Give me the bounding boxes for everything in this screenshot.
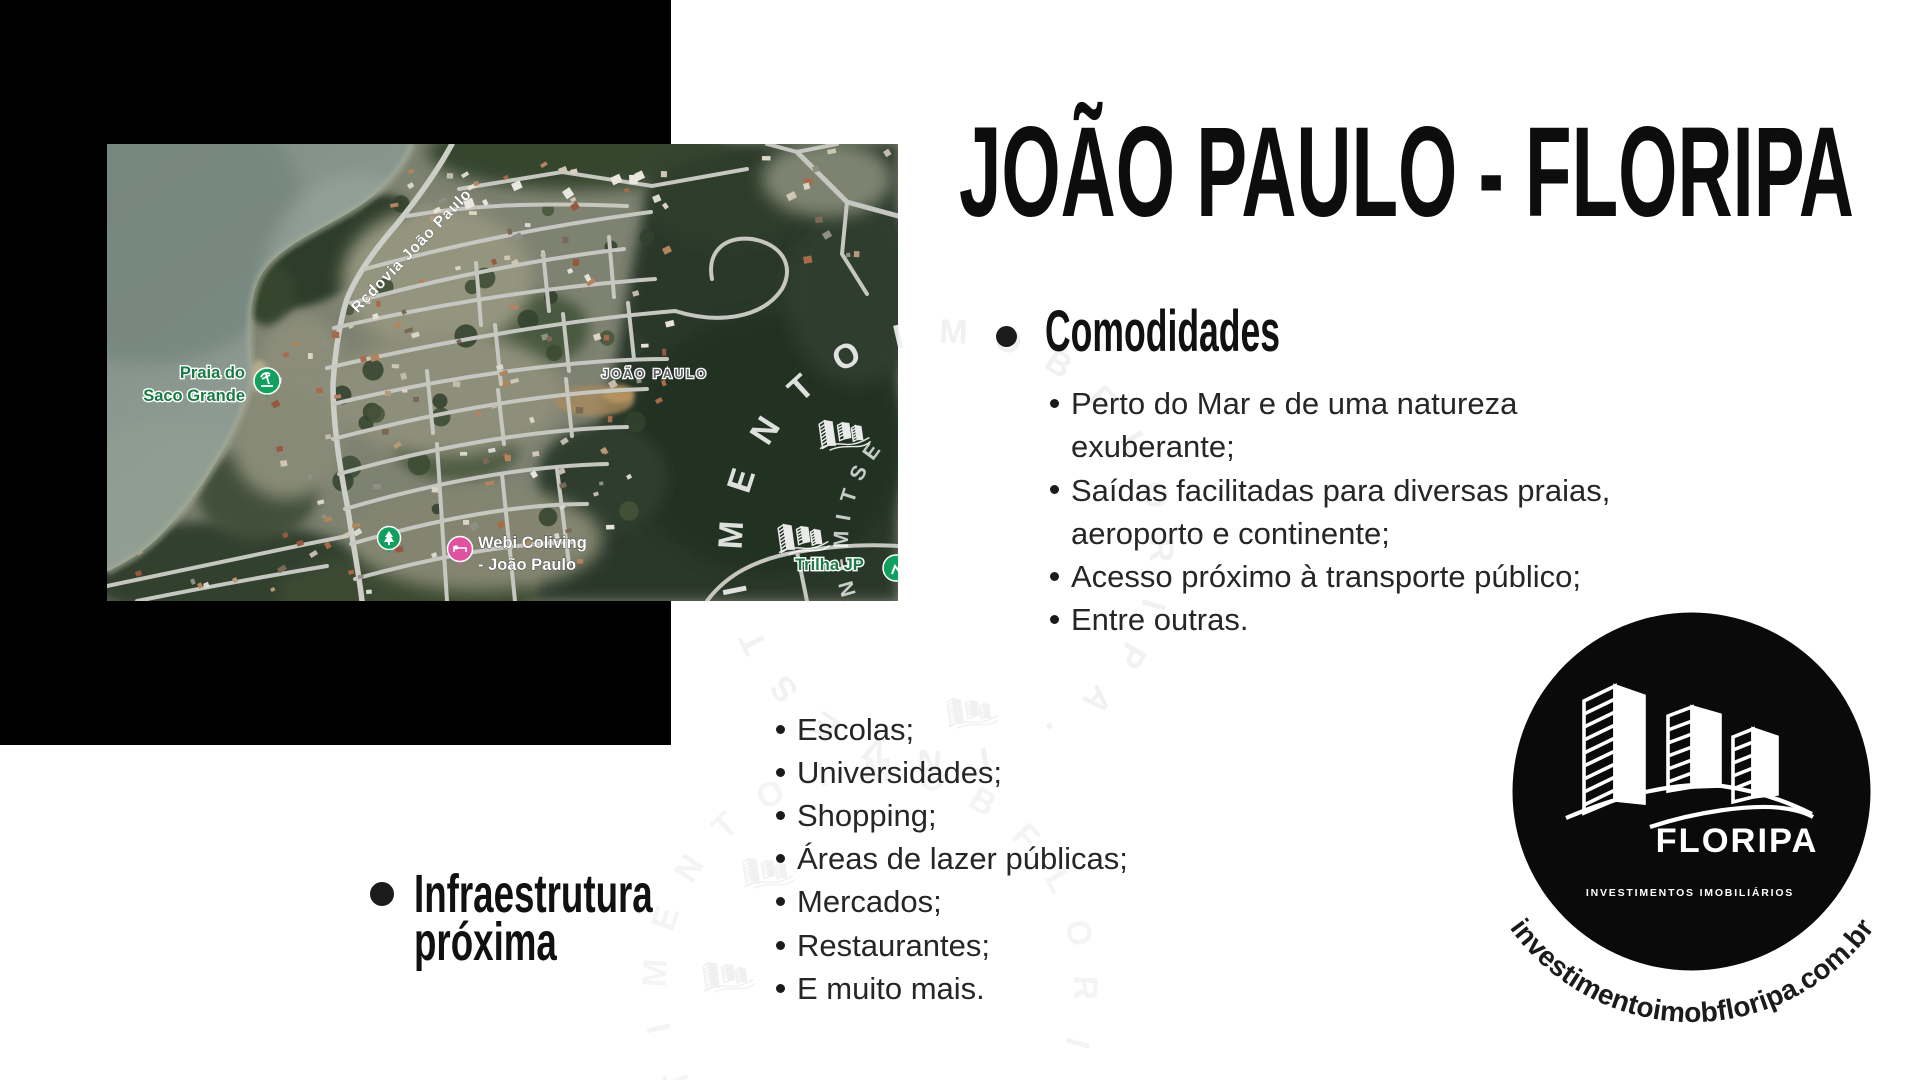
svg-text:I: I xyxy=(640,1020,679,1037)
svg-text:.: . xyxy=(1040,714,1067,752)
svg-text:INVESTIMENTOS IMOBILIÁRIOS: INVESTIMENTOS IMOBILIÁRIOS xyxy=(1586,886,1794,899)
svg-text:- João Paulo: - João Paulo xyxy=(478,556,576,574)
svg-text:O: O xyxy=(1057,916,1100,951)
svg-text:S: S xyxy=(762,668,806,710)
svg-text:Trilha JP: Trilha JP xyxy=(795,556,864,574)
svg-text:P: P xyxy=(1033,1074,1077,1080)
svg-text:T: T xyxy=(656,1063,699,1080)
svg-text:R: R xyxy=(1066,975,1104,1000)
svg-text:M: M xyxy=(830,530,854,548)
svg-text:P: P xyxy=(1109,636,1153,675)
svg-text:Webi Coliving: Webi Coliving xyxy=(478,534,587,552)
svg-text:O: O xyxy=(750,771,791,817)
svg-text:T: T xyxy=(732,625,775,661)
svg-text:FLORIPA: FLORIPA xyxy=(1656,822,1819,860)
svg-text:T: T xyxy=(704,805,745,847)
svg-text:Saco Grande: Saco Grande xyxy=(143,387,245,405)
svg-text:M: M xyxy=(712,520,752,550)
svg-text:Praia do: Praia do xyxy=(180,364,245,382)
svg-text:JOÃO PAULO: JOÃO PAULO xyxy=(602,366,709,381)
svg-text:A: A xyxy=(1075,677,1119,721)
svg-text:I: I xyxy=(1058,1033,1097,1052)
svg-text:M: M xyxy=(939,313,969,352)
